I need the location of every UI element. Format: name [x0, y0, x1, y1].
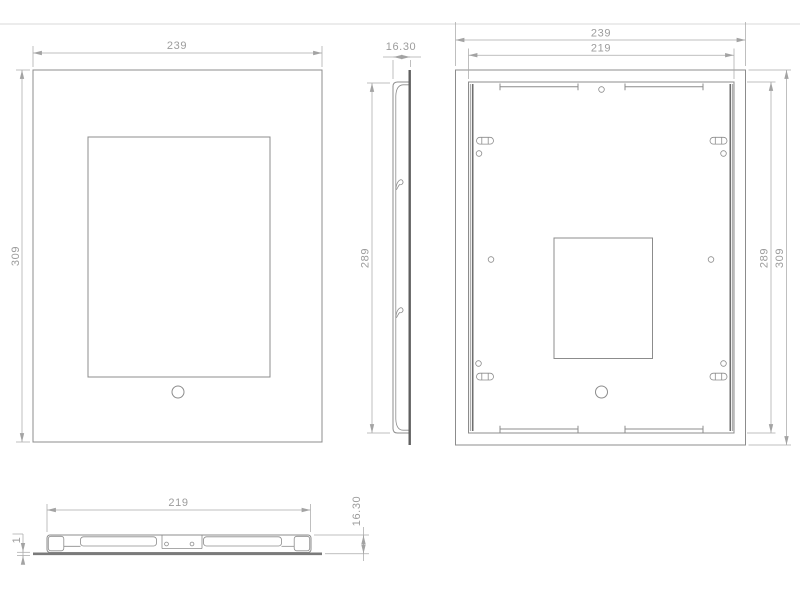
bottom-center-hole-left	[165, 542, 169, 546]
bottom-center-hole-right	[190, 542, 194, 546]
back-inner-height-dimension: 289	[747, 82, 776, 433]
front-width-label: 239	[167, 40, 187, 52]
back-view: 239 219 289 309	[456, 22, 792, 445]
side-latch-hook-top	[396, 180, 403, 190]
back-bottom-tab-right	[625, 426, 703, 433]
front-view: 239 309	[10, 40, 322, 442]
bottom-body-outline	[47, 535, 311, 553]
bottom-depth-dimension: 16.30	[314, 496, 369, 561]
bottom-view: 219 16.30 1	[11, 496, 369, 565]
back-mount-slot-top-left	[477, 137, 494, 144]
side-depth-dimension: 16.30	[383, 41, 421, 79]
back-screw-hole-mid-left	[488, 257, 494, 263]
back-mount-slot-top-right	[710, 137, 727, 144]
bottom-end-cap-right	[294, 536, 310, 551]
bottom-width-label: 219	[168, 497, 188, 509]
back-top-center-hole	[599, 87, 605, 93]
back-screw-hole-bottom-right	[721, 361, 727, 367]
bottom-slot-left	[81, 537, 157, 546]
technical-drawing-sheet: 239 309 16.30 289	[0, 0, 800, 600]
front-screen-window	[88, 137, 270, 377]
back-bottom-tab-left	[500, 426, 578, 433]
back-cable-opening	[554, 238, 653, 359]
bottom-slot-right	[204, 537, 282, 546]
side-view: 16.30 289	[360, 41, 422, 445]
side-latch-hook-bottom	[396, 308, 403, 318]
back-mount-slot-bottom-left	[477, 373, 494, 380]
back-inner-width-dimension: 219	[469, 43, 735, 80]
front-home-button-hole	[172, 386, 184, 398]
back-screw-hole-top-right	[721, 151, 727, 157]
bottom-depth-label: 16.30	[351, 496, 363, 527]
side-height-dimension: 289	[360, 83, 391, 433]
bottom-end-cap-left	[48, 536, 64, 551]
front-width-dimension: 239	[33, 40, 322, 67]
drawing-canvas: 239 309 16.30 289	[0, 0, 800, 600]
back-inner-height-label: 289	[759, 248, 771, 268]
front-height-label: 309	[10, 246, 22, 266]
bottom-width-dimension: 219	[47, 497, 311, 532]
back-inner-width-label: 219	[591, 43, 611, 55]
back-outer-height-label: 309	[774, 248, 786, 268]
side-body-outline	[393, 82, 409, 433]
side-height-label: 289	[360, 248, 372, 268]
back-screw-hole-top-left	[476, 151, 482, 157]
back-top-tab-right	[625, 84, 703, 91]
bottom-center-block	[162, 535, 202, 549]
back-screw-hole-bottom-left	[476, 361, 482, 367]
side-depth-label: 16.30	[386, 41, 417, 53]
back-home-button-hole	[596, 386, 608, 398]
back-top-tab-left	[500, 84, 578, 91]
back-screw-hole-mid-right	[708, 257, 714, 263]
side-body-inner-contour	[396, 85, 409, 430]
back-inner-recess	[469, 82, 735, 433]
back-outer-frame	[456, 70, 746, 445]
bottom-plate-thickness-label: 1	[11, 537, 23, 544]
back-outer-width-label: 239	[591, 28, 611, 40]
bottom-plate-thickness-dimension: 1	[11, 534, 30, 565]
back-mount-slot-bottom-right	[710, 373, 727, 380]
front-height-dimension: 309	[10, 70, 30, 442]
